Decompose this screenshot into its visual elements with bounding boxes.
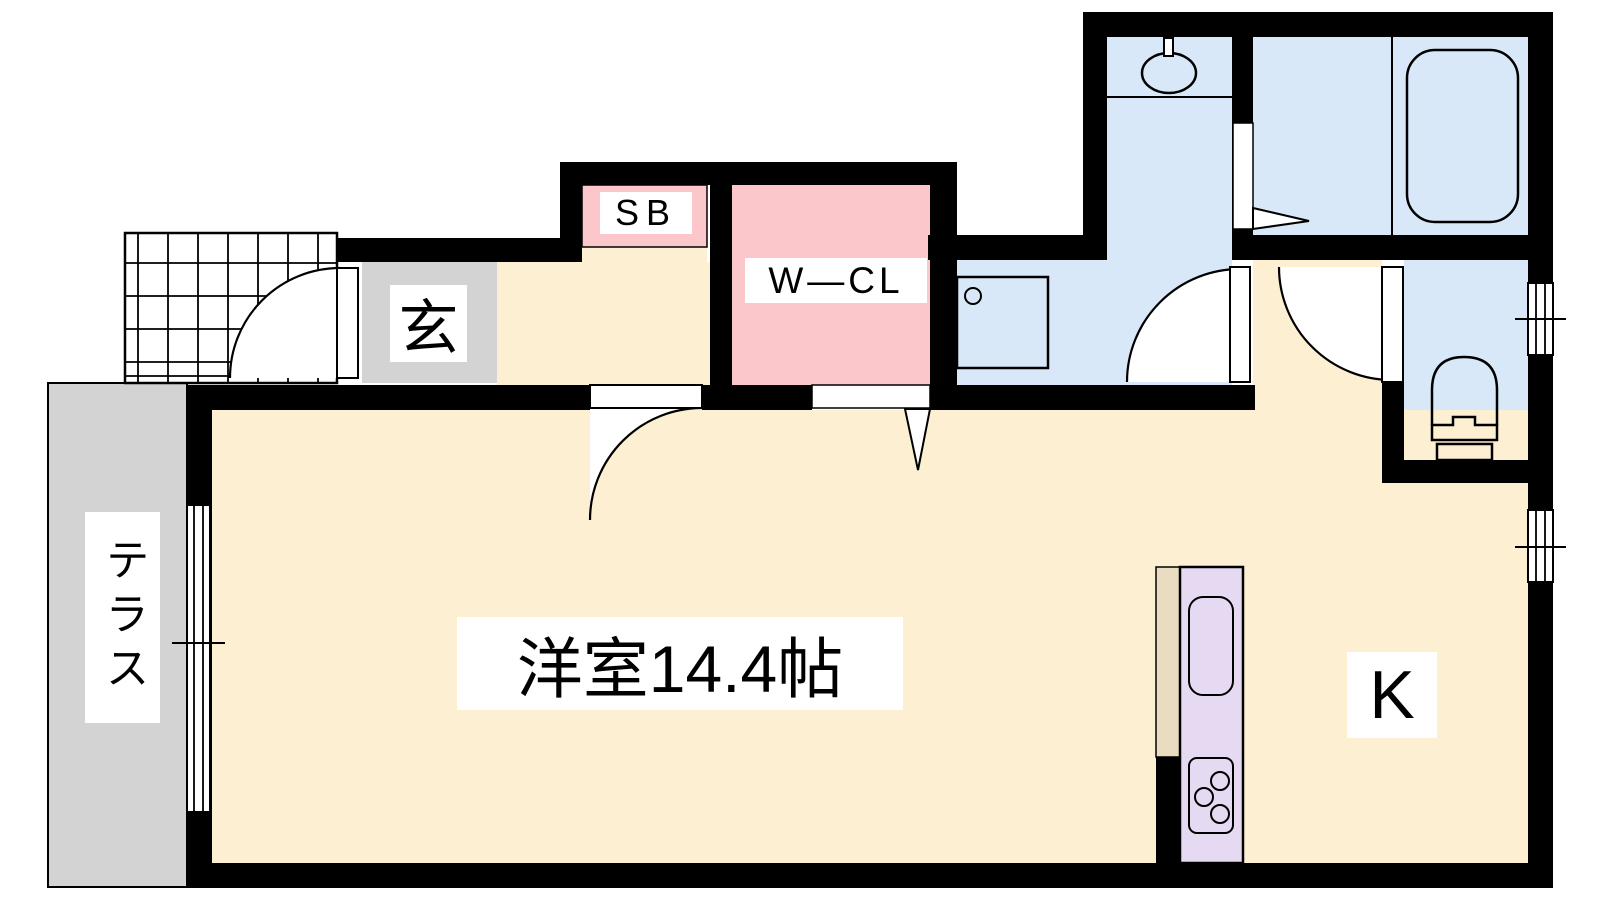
western-room-label: 洋室14.4帖 xyxy=(457,617,903,710)
terrace-label: テラス xyxy=(85,512,160,723)
floors xyxy=(48,33,1528,887)
kitchen-label: K xyxy=(1347,652,1437,738)
shoe-box-label: SB xyxy=(600,192,692,234)
walk-in-closet-label: W―CL xyxy=(745,258,927,303)
washroom-floor xyxy=(1107,33,1232,260)
floor-plan: 玄 SB W―CL 洋室14.4帖 K テラス xyxy=(0,0,1600,900)
bathroom-floor xyxy=(1253,33,1528,235)
genkan-label: 玄 xyxy=(390,285,467,362)
floor-plan-drawing xyxy=(0,0,1600,900)
hallway-floor xyxy=(497,262,710,385)
